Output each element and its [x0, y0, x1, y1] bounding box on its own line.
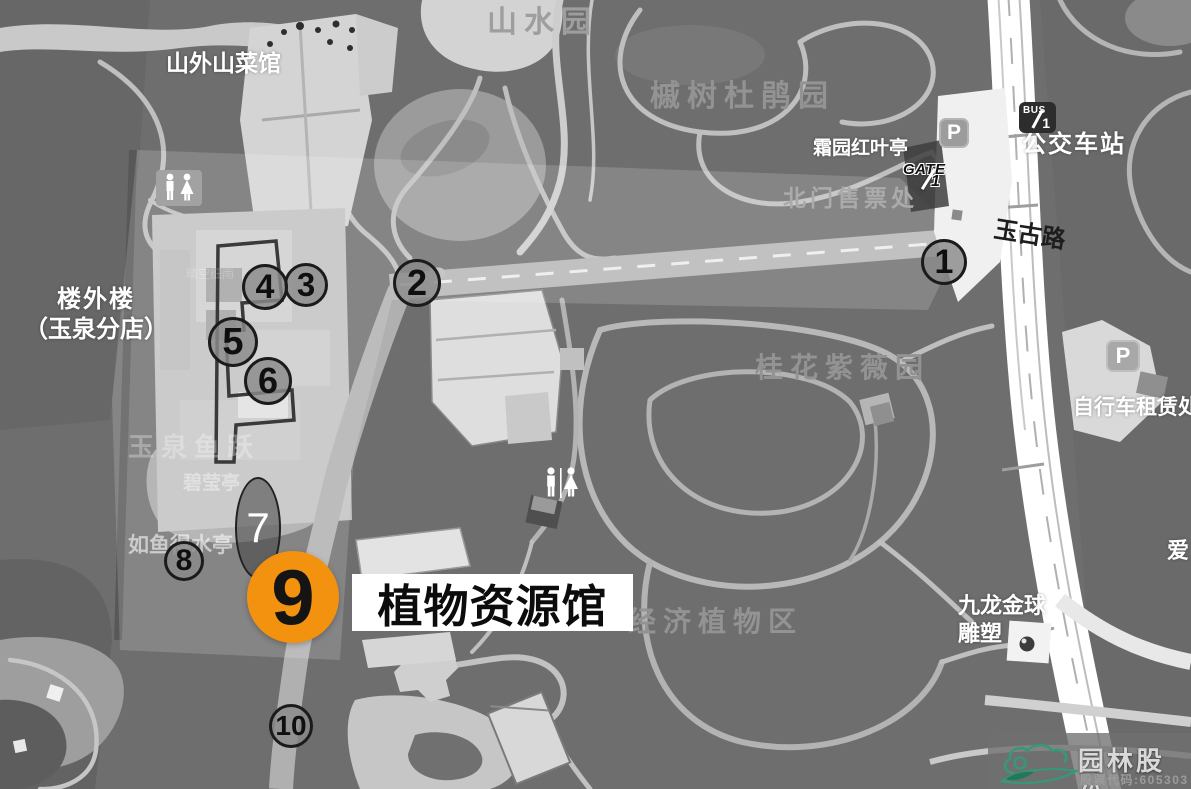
- label-bicycle-rental: 自行车租赁处: [1073, 396, 1191, 420]
- label-osmanthus-garden: 桂花紫薇园: [755, 352, 930, 384]
- label-shuangyuan-redleaf-pavilion: 霜园红叶亭: [813, 138, 908, 160]
- label-bus-station: 公交车站: [1022, 131, 1126, 159]
- callout-marker-9: 9: [247, 551, 339, 643]
- parking-icon: P: [939, 118, 969, 148]
- company-watermark: 园林股份 股票代码:605303: [988, 733, 1191, 789]
- map-marker-6: 6: [244, 357, 292, 405]
- bus-1-badge: BUS 1: [1019, 102, 1056, 133]
- label-economic-plants-area: 经济植物区: [628, 606, 803, 638]
- map-artwork: [0, 0, 1191, 789]
- map-canvas: 山外山菜馆 山水园 槭树杜鹃园 霜园红叶亭 北门售票处 公交车站 玉古路 楼外楼…: [0, 0, 1191, 789]
- label-nine-dragon-line1: 九龙金球: [958, 593, 1046, 618]
- parking-icon: P: [1106, 340, 1140, 372]
- label-yuquan-fish-leap: 玉泉鱼跃: [128, 433, 260, 463]
- watermark-stock-code: 股票代码:605303: [1080, 771, 1189, 788]
- map-marker-8: 8: [164, 541, 204, 581]
- label-north-gate-ticket-office: 北门售票处: [783, 185, 918, 211]
- label-love-partial: 爱: [1167, 538, 1189, 563]
- label-maple-azalea-garden: 槭树杜鹃园: [650, 80, 835, 115]
- label-shanshui-garden: 山水园: [487, 6, 598, 41]
- label-faint-pool: 晴空细雨: [186, 268, 234, 282]
- label-nine-dragon-line2: 雕塑: [958, 621, 1002, 646]
- map-marker-1: 1: [921, 239, 967, 285]
- gate-1-badge: GATE 1: [903, 161, 955, 195]
- callout-label-plant-resources-hall: 植物资源馆: [352, 574, 633, 631]
- map-marker-2: 2: [393, 259, 441, 307]
- bus-badge-number: 1: [1042, 115, 1050, 131]
- map-marker-5: 5: [208, 317, 258, 367]
- company-logo-cloud-icon: [996, 739, 1082, 789]
- label-louwailou-line1: 楼外楼: [57, 286, 135, 314]
- label-yugu-road: 玉古路: [992, 214, 1023, 249]
- map-marker-3: 3: [284, 263, 328, 307]
- label-biying-pavilion: 碧莹亭: [183, 473, 240, 495]
- gate-badge-number: 1: [931, 173, 940, 191]
- map-marker-4: 4: [242, 264, 288, 310]
- label-louwailou-line2: （玉泉分店）: [24, 316, 168, 344]
- map-marker-10: 10: [269, 704, 313, 748]
- label-shanwaishan-restaurant: 山外山菜馆: [166, 50, 281, 76]
